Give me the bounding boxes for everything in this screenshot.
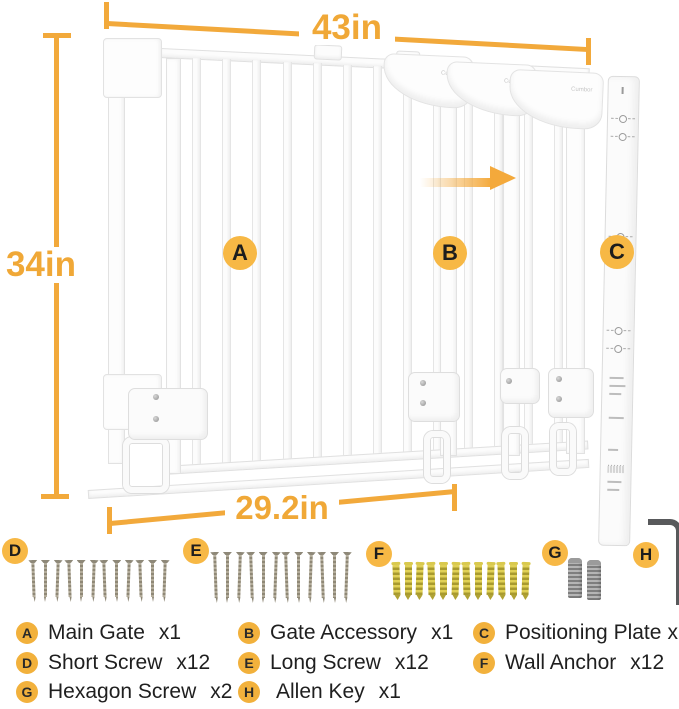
- legend-qty: x2: [667, 621, 679, 645]
- short-screw: [159, 560, 169, 602]
- long-screw: [270, 552, 281, 603]
- wall-anchor: [474, 562, 483, 600]
- legend-name: Positioning Plate: [505, 621, 661, 645]
- left-dimension-label: 34in: [2, 247, 80, 283]
- hardware-badge-d: D: [2, 538, 28, 564]
- gate-bar: [373, 66, 382, 456]
- legend-item-gate-accessory: B Gate Accessory x1: [238, 621, 453, 645]
- wall-anchor: [485, 562, 495, 600]
- hinge-bracket: [128, 388, 208, 440]
- legend-badge-d: D: [16, 652, 38, 674]
- legend-name: Allen Key: [276, 680, 365, 704]
- short-screw: [41, 560, 50, 602]
- bracket-screw-dot: [556, 376, 562, 382]
- plate-print: [609, 385, 625, 387]
- short-screw: [77, 560, 86, 602]
- gate-foot-loop: [424, 431, 450, 483]
- short-screw: [135, 560, 145, 602]
- legend-name: Gate Accessory: [270, 621, 417, 645]
- long-screw: [259, 552, 268, 603]
- legend-qty: x1: [159, 621, 181, 645]
- legend-item-wall-anchor: F Wall Anchor x12: [473, 651, 664, 675]
- legend-item-long-screw: E Long Screw x12: [238, 651, 429, 675]
- bracket-screw-dot: [420, 380, 426, 386]
- bracket-screw-dot: [153, 394, 159, 400]
- accessory-bracket: [548, 368, 594, 418]
- plate-print: [607, 489, 619, 491]
- plate-hole: [619, 133, 627, 141]
- plate-hole: [614, 345, 622, 353]
- short-screw: [88, 560, 98, 602]
- accessory-bracket: [408, 372, 460, 422]
- hardware-badge-f: F: [366, 541, 392, 567]
- legend-name: Short Screw: [48, 651, 162, 675]
- long-screw: [294, 552, 303, 603]
- legend-qty: x2: [210, 680, 232, 704]
- long-screw: [305, 552, 316, 603]
- legend-name: Wall Anchor: [505, 651, 616, 675]
- gate-bar: [343, 65, 352, 459]
- part-badge-b: B: [433, 236, 467, 270]
- long-screw: [234, 552, 245, 603]
- legend-item-main-gate: A Main Gate x1: [16, 621, 181, 645]
- plate-hole: [619, 115, 627, 123]
- panel-logo: Cumbor: [571, 87, 593, 94]
- bracket-screw-dot: [420, 400, 426, 406]
- long-screw: [282, 552, 293, 603]
- plate-hole: [614, 327, 622, 335]
- legend-item-short-screw: D Short Screw x12: [16, 651, 210, 675]
- plate-print: [608, 449, 618, 451]
- gate-foot-loop: [502, 427, 528, 479]
- hexagon-screw: [568, 558, 582, 598]
- plate-print: [609, 393, 621, 395]
- legend-name: Hexagon Screw: [48, 680, 196, 704]
- legend-item-hexagon-screw: G Hexagon Screw x2: [16, 680, 232, 704]
- wall-anchor: [391, 562, 401, 600]
- bottom-dimension-left-tick: [107, 507, 112, 534]
- plate-mark: [622, 87, 624, 94]
- legend-badge-h: H: [238, 681, 260, 703]
- plate-print: [607, 481, 621, 483]
- gate-foot-loop: [123, 437, 169, 493]
- legend-badge-f: F: [473, 652, 495, 674]
- long-screw: [246, 552, 257, 603]
- hardware-badge-e: E: [183, 538, 209, 564]
- slide-direction-arrow-tip-icon: [490, 166, 516, 190]
- left-dimension-bottom-tick: [41, 494, 69, 499]
- top-dimension-label: 43in: [299, 11, 395, 45]
- part-badge-c: C: [600, 235, 634, 269]
- short-screw: [123, 560, 133, 602]
- bracket-screw-dot: [506, 378, 512, 384]
- legend-qty: x12: [176, 651, 210, 675]
- legend-item-allen-key: H Allen Key x1: [238, 680, 401, 704]
- plate-print: [609, 417, 624, 419]
- legend-badge-e: E: [238, 652, 260, 674]
- hinge-top-block: [103, 38, 162, 98]
- part-badge-a: A: [223, 236, 257, 270]
- top-dimension-right-tick: [586, 38, 591, 65]
- accessory-bracket: [500, 368, 540, 404]
- legend-badge-a: A: [16, 622, 38, 644]
- bottom-dimension-right-tick: [452, 484, 457, 511]
- long-screw: [210, 552, 221, 603]
- wall-anchor: [462, 562, 472, 600]
- legend-item-positioning-plate: C Positioning Plate x2: [473, 621, 679, 645]
- positioning-plate: [598, 76, 640, 547]
- long-screw: [317, 552, 328, 603]
- long-screw: [223, 552, 232, 603]
- bracket-screw-dot: [556, 396, 562, 402]
- gate-bar: [313, 63, 322, 460]
- bracket-screw-dot: [153, 416, 159, 422]
- plate-print: [610, 377, 624, 379]
- wall-anchor: [450, 562, 460, 600]
- legend-badge-c: C: [473, 622, 495, 644]
- long-screw: [341, 552, 352, 603]
- gate-foot-loop: [550, 423, 576, 475]
- hardware-badge-g: G: [542, 540, 568, 566]
- legend-qty: x12: [630, 651, 664, 675]
- legend-name: Main Gate: [48, 621, 145, 645]
- legend-name: Long Screw: [270, 651, 381, 675]
- short-screw: [148, 560, 157, 602]
- wall-anchor: [439, 562, 448, 600]
- top-dimension-left-tick: [104, 2, 109, 29]
- long-screw: [330, 552, 339, 603]
- wall-anchor: [497, 562, 507, 600]
- hexagon-screw: [587, 560, 601, 600]
- left-dimension-top-tick: [43, 33, 71, 38]
- legend-qty: x12: [395, 651, 429, 675]
- hardware-badge-h: H: [633, 542, 659, 568]
- short-screw: [28, 560, 38, 602]
- bottom-dimension-label: 29.2in: [225, 492, 339, 524]
- wall-anchor: [404, 562, 413, 600]
- legend-badge-b: B: [238, 622, 260, 644]
- wall-anchor: [509, 562, 518, 600]
- legend-qty: x1: [379, 680, 401, 704]
- wall-anchor: [520, 562, 530, 600]
- short-screw: [112, 560, 121, 602]
- short-screw: [52, 560, 62, 602]
- wall-anchor: [415, 562, 425, 600]
- wall-anchor: [426, 562, 436, 600]
- accessory-panel: Cumbor: [508, 69, 604, 130]
- plate-print: [608, 465, 624, 473]
- gate-bar: [283, 62, 292, 462]
- short-screw: [100, 560, 110, 602]
- slide-direction-arrow-icon: [420, 178, 492, 187]
- legend-badge-g: G: [16, 681, 38, 703]
- legend-qty: x1: [431, 621, 453, 645]
- product-diagram: 43in 34in 29.2in Cumbor Cumbor Cumbor: [0, 0, 679, 709]
- short-screw: [64, 560, 74, 602]
